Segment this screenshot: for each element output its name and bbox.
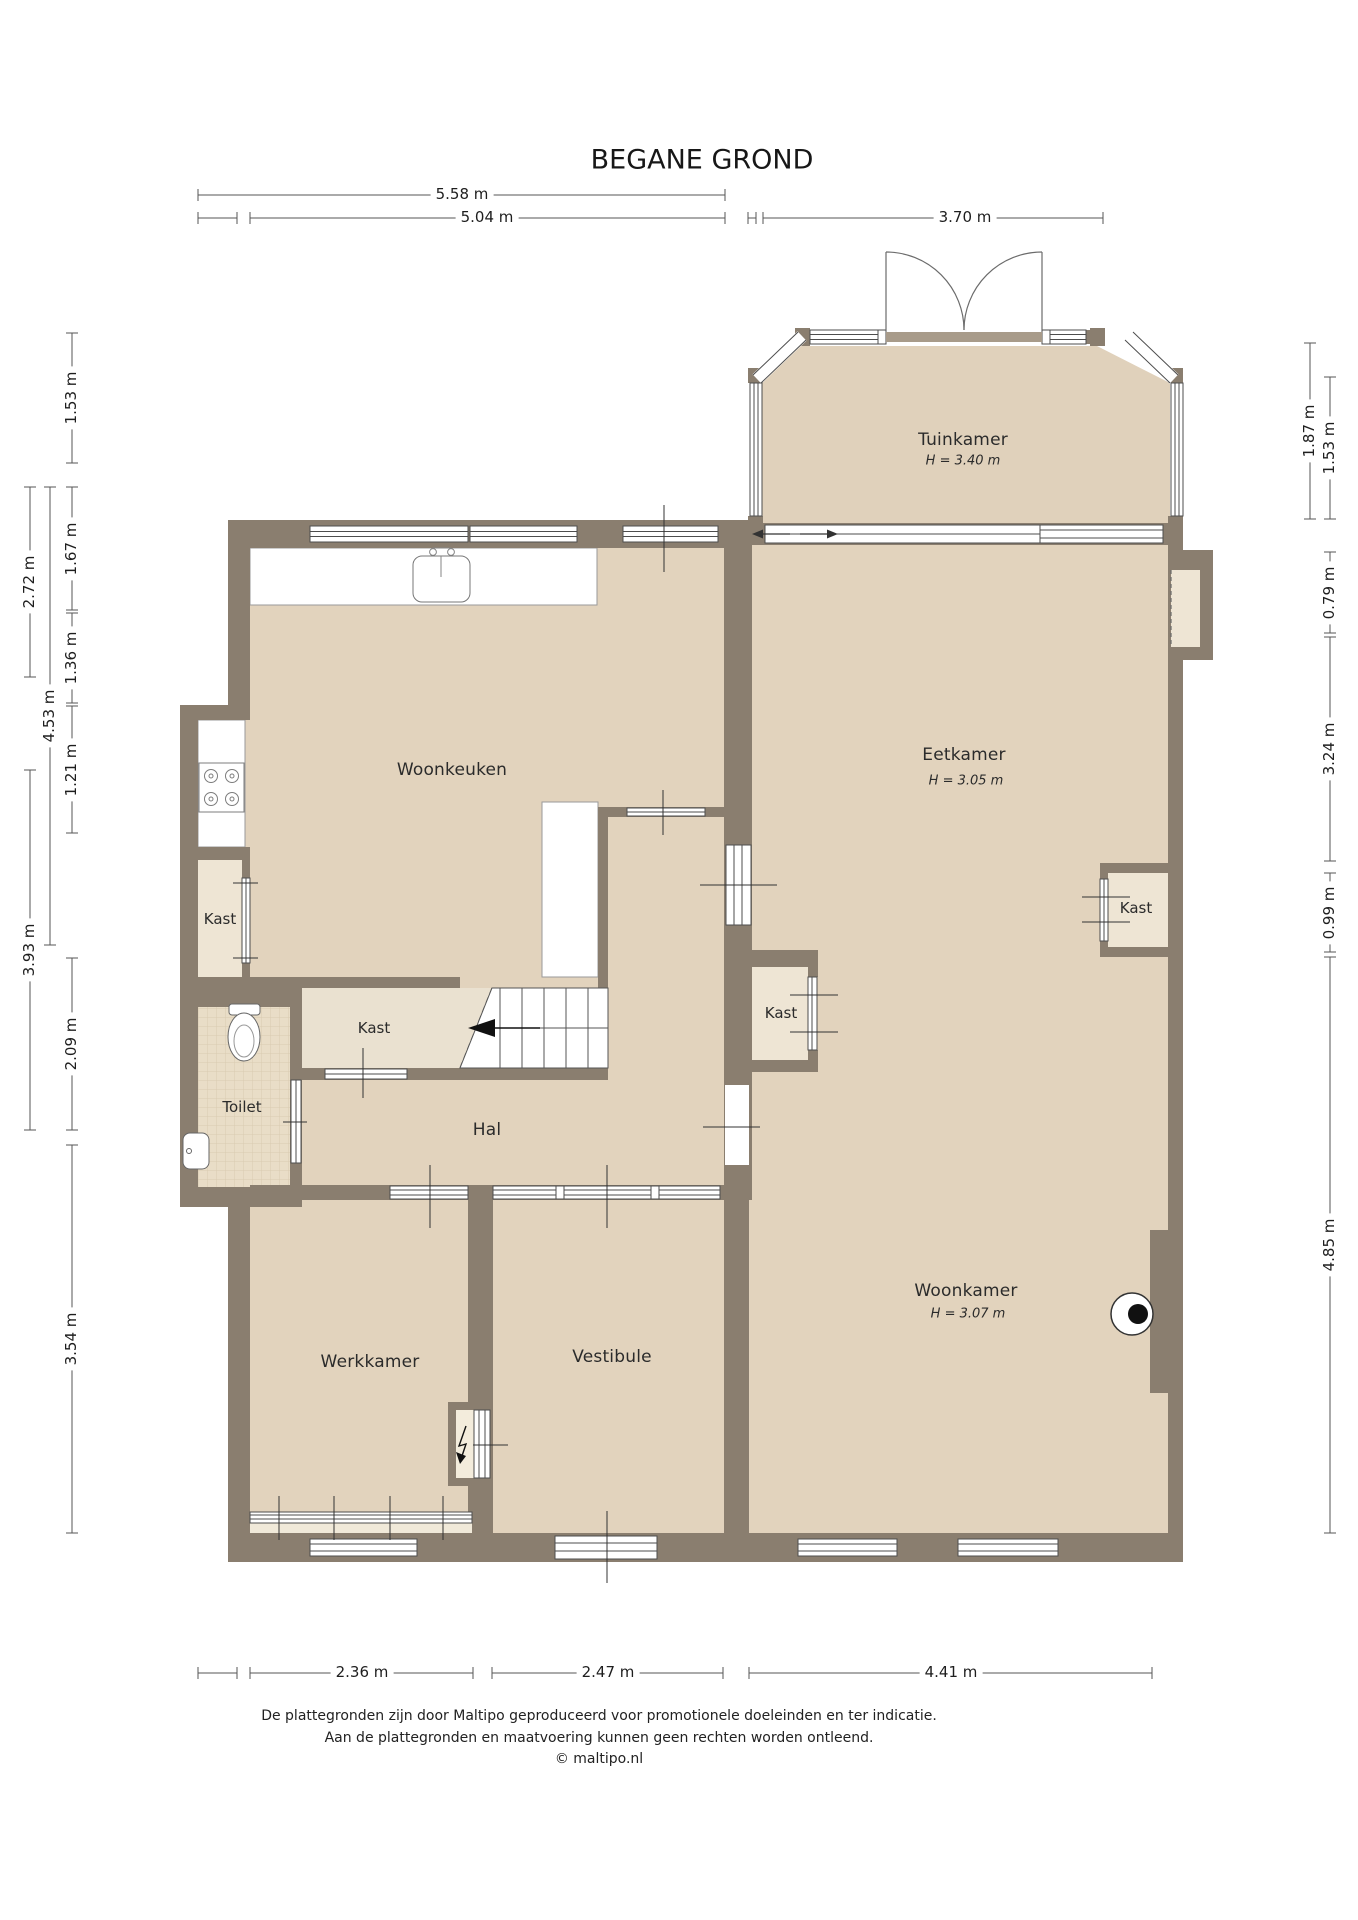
dim-top-558: 5.58 m [431,187,494,203]
room-label-kast-eetkamer-links: Kast [765,1004,797,1022]
stove-icon [199,763,244,812]
footer-disclaimer-line2: Aan de plattegronden en maatvoering kunn… [179,1730,1019,1746]
hand-basin-icon [183,1133,209,1169]
french-door-arc-right [964,252,1042,330]
room-label-woonkamer: Woonkamer [914,1281,1017,1301]
sink-icon [413,548,470,602]
french-door-leaves [886,252,1042,330]
room-height-tuinkamer: H = 3.40 m [926,454,1001,469]
room-height-eetkamer: H = 3.05 m [929,774,1004,789]
room-label-werkkamer: Werkkamer [321,1352,420,1372]
dim-right-079: 0.79 m [1322,562,1338,625]
dim-right-153: 1.53 m [1322,417,1338,480]
dim-right-099: 0.99 m [1322,882,1338,945]
dim-right-324: 3.24 m [1322,718,1338,781]
dim-left-272: 2.72 m [22,551,38,614]
dim-left-393: 3.93 m [22,919,38,982]
french-door-arc-left [886,252,964,330]
room-label-kast-eetkamer-rechts: Kast [1120,899,1152,917]
dim-left-453: 4.53 m [42,685,58,748]
dim-top-370: 3.70 m [934,210,997,226]
dim-bottom-247: 2.47 m [577,1665,640,1681]
room-label-eetkamer: Eetkamer [922,745,1005,765]
dim-left-354: 3.54 m [64,1308,80,1371]
footer-copyright: © maltipo.nl [179,1751,1019,1767]
dim-right-485: 4.85 m [1322,1214,1338,1277]
footer-disclaimer-line1: De plattegronden zijn door Maltipo gepro… [179,1708,1019,1724]
dim-left-167: 1.67 m [64,518,80,581]
room-label-vestibule: Vestibule [572,1347,652,1367]
dim-right-187: 1.87 m [1302,400,1318,463]
floorplan-page: BEGANE GROND Tuinkamer H = 3.40 m Woonke… [0,0,1358,1920]
page-title: BEGANE GROND [591,145,814,176]
room-label-kast-keuken: Kast [204,910,236,928]
room-label-woonkeuken: Woonkeuken [397,760,507,780]
toilet-icon [228,1004,260,1061]
room-label-kast-hal: Kast [358,1019,390,1037]
dim-top-504: 5.04 m [456,210,519,226]
dim-bottom-236: 2.36 m [331,1665,394,1681]
room-height-woonkamer: H = 3.07 m [931,1307,1006,1322]
dim-left-153: 1.53 m [64,367,80,430]
fireplace-stove-icon [1111,1293,1153,1335]
dim-left-121: 1.21 m [64,739,80,802]
room-label-hal: Hal [473,1120,502,1140]
floorplan-canvas [0,0,1358,1920]
dim-left-209: 2.09 m [64,1013,80,1076]
dim-bottom-441: 4.41 m [920,1665,983,1681]
room-label-tuinkamer: Tuinkamer [918,430,1008,450]
dim-left-136: 1.36 m [64,627,80,690]
room-label-toilet: Toilet [222,1098,261,1116]
